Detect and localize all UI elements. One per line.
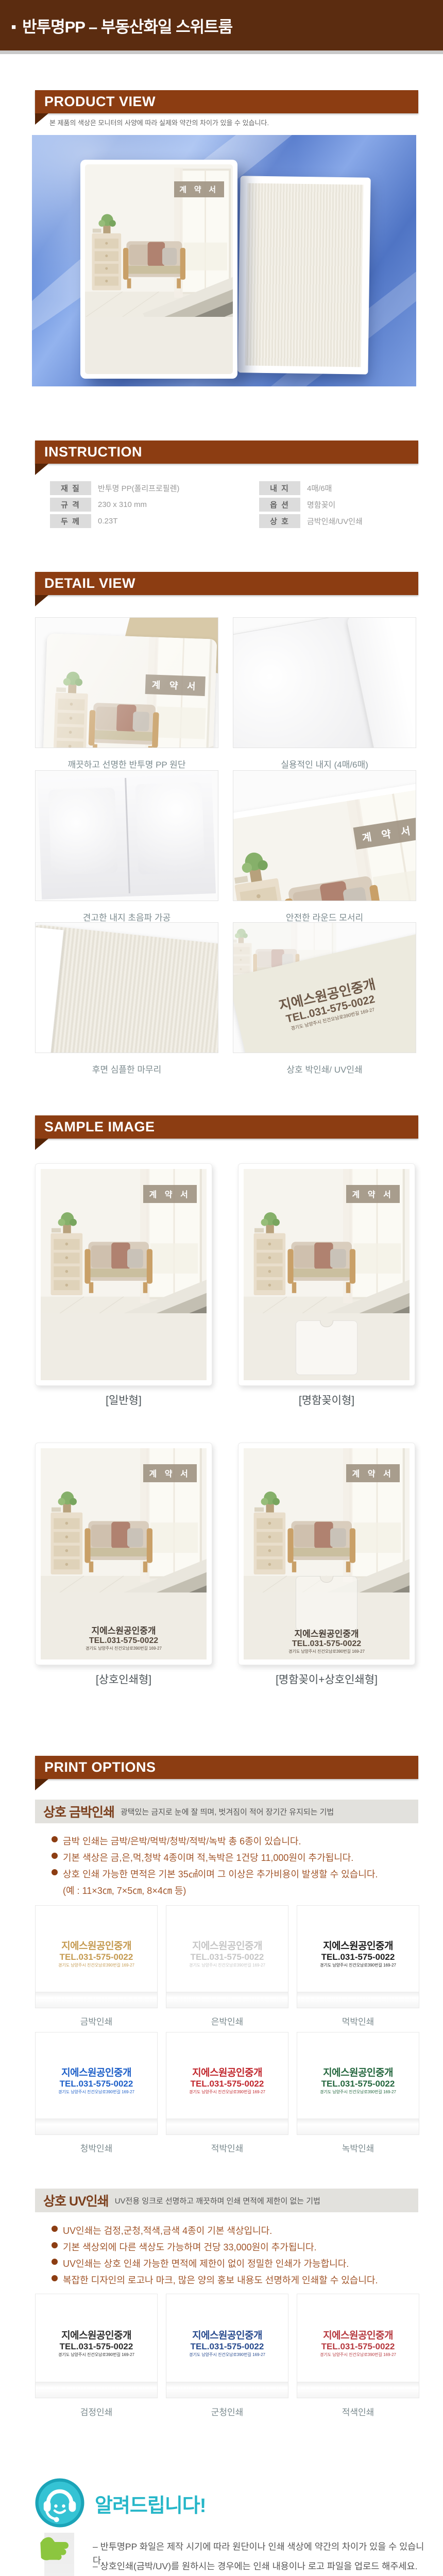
print-sample-text: 지에스원공인중개 TEL.031-575-0022 경기도 남양주시 진건오남로… [249, 968, 408, 1040]
headset-icon [34, 2477, 86, 2529]
pp-sheen [43, 633, 217, 748]
foil-bullet: 금박 인쇄는 금박/은박/먹박/청박/적박/녹박 총 6종이 있습니다. [52, 1834, 407, 1848]
uv-swatch-black: 지에스원공인중개 TEL.031-575-0022 경기도 남양주시 진건오남로… [35, 2294, 158, 2398]
foil-swatch-silver: 지에스원공인중개 TEL.031-575-0022 경기도 남양주시 진건오남로… [166, 1905, 288, 2008]
open-pockets [38, 772, 216, 900]
page-header: ■ 반투명PP – 부동산화일 스위트룸 [0, 0, 443, 50]
swatch-caption: 청박인쇄 [35, 2141, 158, 2154]
uv-print-title: 상호 UV인쇄 [43, 2191, 109, 2210]
folder-cover-bottom: 지에스원공인중개 TEL.031-575-0022 경기도 남양주시 진건오남로… [244, 1592, 410, 1659]
section-product-view: PRODUCT VIEW [35, 90, 418, 113]
spec-row-branding: 상 호 금박인쇄/UV인쇄 [259, 514, 363, 528]
bullet-text: 금박 인쇄는 금박/은박/먹박/청박/적박/녹박 총 6종이 있습니다. [63, 1834, 301, 1848]
company-tel: TEL.031-575-0022 [166, 1952, 288, 1962]
bullet-dot-icon [52, 1836, 58, 1842]
uv-print-desc: UV전용 잉크로 선명하고 깨끗하며 인쇄 면적에 제한이 없는 기법 [115, 2195, 320, 2206]
bullet-text: 기본 색상외에 다른 색상도 가능하며 건당 33,000원이 추가됩니다. [63, 2240, 317, 2253]
uv-swatch-red: 지에스원공인중개 TEL.031-575-0022 경기도 남양주시 진건오남로… [297, 2294, 419, 2398]
sample-folder-basic: 계 약 서 [35, 1163, 212, 1386]
contract-label: 계 약 서 [143, 1464, 196, 1482]
swatch-caption: 금박인쇄 [35, 2014, 158, 2027]
section-title: INSTRUCTION [44, 444, 142, 460]
pocket-notch [320, 1576, 333, 1583]
notice-line: – 상호인쇄(금박/UV)를 원하시는 경우에는 인쇄 내용이나 로고 파일을 … [93, 2560, 428, 2573]
contract-label: 계 약 서 [346, 1464, 399, 1482]
section-sample-image: SAMPLE IMAGE [35, 1115, 418, 1139]
print-sample-text: 지에스원공인중개 TEL.031-575-0022 경기도 남양주시 진건오남로… [41, 1623, 207, 1651]
foil-swatch-red: 지에스원공인중개 TEL.031-575-0022 경기도 남양주시 진건오남로… [166, 2032, 288, 2135]
section-print-options: PRINT OPTIONS [35, 1756, 418, 1779]
detail-caption: 실용적인 내지 (4매/6매) [233, 757, 416, 770]
swatch-caption: 녹박인쇄 [297, 2141, 419, 2154]
detail-caption: 깨끗하고 선명한 반투명 PP 원단 [35, 757, 218, 770]
folder-cover-photo: 계 약 서 [244, 1448, 410, 1592]
print-sample-text: 지에스원공인중개 TEL.031-575-0022 경기도 남양주시 진건오남로… [297, 2065, 419, 2095]
print-sample-text: 지에스원공인중개 TEL.031-575-0022 경기도 남양주시 진건오남로… [36, 2328, 157, 2358]
folder-back-cover [237, 176, 370, 374]
folder-cover-photo: 계 약 서 [233, 787, 416, 901]
sample-folder-brand-print: 계 약 서 지에스원공인중개 TEL.031-575-0022 경기도 남양주시… [35, 1443, 212, 1665]
contract-label: 계 약 서 [346, 1185, 399, 1203]
company-tel: TEL.031-575-0022 [36, 1952, 157, 1962]
company-name: 지에스원공인중개 [297, 2328, 419, 2342]
pp-cover-sheet: 계 약 서 [43, 633, 217, 748]
bullet-dot-icon [52, 2242, 58, 2248]
detail-caption: 후면 심플한 마무리 [35, 1062, 218, 1075]
header-divider [0, 50, 443, 54]
ultrasonic-seam [125, 778, 130, 893]
spec-label: 상 호 [259, 514, 300, 528]
bullet-text: UV인쇄는 검정,군청,적색,금색 4종이 기본 색상입니다. [63, 2224, 272, 2237]
foil-bullet: 상호 인쇄 가능한 면적은 기본 35㎠이며 그 이상은 추가비용이 발생할 수… [52, 1867, 407, 1880]
notice-title: 알려드립니다! [95, 2489, 206, 2518]
detail-photo-pp-cover: 계 약 서 [35, 617, 218, 748]
swatch-caption: 적박인쇄 [166, 2141, 288, 2154]
company-address: 경기도 남양주시 진건오남로390번길 169-27 [297, 2352, 419, 2358]
foil-print-desc: 광택있는 금지로 눈에 잘 띄며, 벗겨짐이 적어 장기간 유지되는 기법 [121, 1806, 334, 1817]
detail-photo-branding-print: 지에스원공인중개 TEL.031-575-0022 경기도 남양주시 진건오남로… [233, 922, 416, 1053]
spec-value: 4매/6매 [307, 483, 332, 494]
company-name: 지에스원공인중개 [36, 1938, 157, 1952]
folder-cover-bottom [244, 1313, 410, 1380]
company-name: 지에스원공인중개 [36, 2328, 157, 2342]
section-title: SAMPLE IMAGE [44, 1119, 155, 1135]
uv-bullet: UV인쇄는 상호 인쇄 가능한 면적에 제한이 없이 정밀한 인쇄가 가능합니다… [52, 2257, 407, 2270]
pocket-notch [320, 1320, 333, 1327]
product-detail-page: ■ 반투명PP – 부동산화일 스위트룸 PRODUCT VIEW 본 제품의 … [0, 0, 443, 2576]
company-name: 지에스원공인중개 [36, 2065, 157, 2079]
print-sample-text: 지에스원공인중개 TEL.031-575-0022 경기도 남양주시 진건오남로… [244, 1626, 410, 1654]
bullet-dot-icon [52, 2275, 58, 2281]
company-tel: TEL.031-575-0022 [244, 1639, 410, 1649]
product-main-image: 계 약 서 [32, 135, 416, 386]
swatch-caption: 검정인쇄 [35, 2405, 158, 2418]
page-title: 반투명PP – 부동산화일 스위트룸 [22, 14, 232, 37]
folder-cover-bottom [85, 317, 233, 374]
company-address: 경기도 남양주시 진건오남로390번길 169-27 [36, 2089, 157, 2095]
company-name: 지에스원공인중개 [297, 1938, 419, 1952]
company-address: 경기도 남양주시 진건오남로390번길 169-27 [166, 1962, 288, 1968]
company-address: 경기도 남양주시 진건오남로390번길 169-27 [297, 1962, 419, 1968]
company-name: 지에스원공인중개 [41, 1623, 207, 1636]
company-tel: TEL.031-575-0022 [36, 2079, 157, 2089]
spec-label: 재 질 [50, 481, 91, 495]
print-sample-text: 지에스원공인중개 TEL.031-575-0022 경기도 남양주시 진건오남로… [166, 2328, 288, 2358]
sample-folder-card-pocket: 계 약 서 [238, 1163, 415, 1386]
spec-value: 명함꽂이 [307, 499, 335, 510]
pocket-sheen [135, 782, 205, 874]
uv-swatch-navy: 지에스원공인중개 TEL.031-575-0022 경기도 남양주시 진건오남로… [166, 2294, 288, 2398]
company-name: 지에스원공인중개 [166, 1938, 288, 1952]
company-address: 경기도 남양주시 진건오남로390번길 169-27 [41, 1646, 207, 1651]
print-sample-text: 지에스원공인중개 TEL.031-575-0022 경기도 남양주시 진건오남로… [166, 1938, 288, 1968]
spec-value: 0.23T [98, 517, 117, 526]
foil-bullet-example: (예 : 11×3㎝, 7×5㎝, 8×4㎝ 등) [63, 1884, 186, 1897]
spec-row-option: 옵 션 명함꽂이 [259, 498, 335, 512]
spec-label: 두 께 [50, 514, 91, 528]
detail-caption: 견고한 내지 초음파 가공 [35, 910, 218, 923]
company-tel: TEL.031-575-0022 [41, 1636, 207, 1646]
company-name: 지에스원공인중개 [166, 2328, 288, 2342]
company-tel: TEL.031-575-0022 [36, 2342, 157, 2352]
uv-bullet: 복잡한 디자인의 로고나 마크, 많은 양의 홍보 내용도 선명하게 인쇄할 수… [52, 2273, 407, 2286]
company-address: 경기도 남양주시 진건오남로390번길 169-27 [166, 2089, 288, 2095]
detail-caption: 상호 박인쇄/ UV인쇄 [233, 1062, 416, 1075]
spec-row-size: 규 격 230 x 310 mm [50, 498, 147, 512]
company-address: 경기도 남양주시 진건오남로390번길 169-27 [36, 1962, 157, 1968]
swatch-caption: 군청인쇄 [166, 2405, 288, 2418]
swatch-caption: 은박인쇄 [166, 2014, 288, 2027]
bullet-text: 복잡한 디자인의 로고나 마크, 많은 양의 홍보 내용도 선명하게 인쇄할 수… [63, 2273, 378, 2286]
folder-cover-photo: 계 약 서 [41, 1169, 207, 1313]
company-name: 지에스원공인중개 [244, 1626, 410, 1639]
print-sample-text: 지에스원공인중개 TEL.031-575-0022 경기도 남양주시 진건오남로… [36, 2065, 157, 2095]
section-title: PRODUCT VIEW [44, 94, 156, 110]
bullet-dot-icon [52, 2226, 58, 2232]
folder-round-corner: 계 약 서 [233, 779, 416, 901]
foil-swatch-black: 지에스원공인중개 TEL.031-575-0022 경기도 남양주시 진건오남로… [297, 1905, 419, 2008]
uv-print-header: 상호 UV인쇄 UV전용 잉크로 선명하고 깨끗하며 인쇄 면적에 제한이 없는… [35, 2189, 418, 2212]
spec-label: 옵 션 [259, 498, 300, 512]
company-tel: TEL.031-575-0022 [166, 2079, 288, 2089]
back-cover-texture [35, 924, 218, 1053]
folder-cover-photo: 계 약 서 [244, 1169, 410, 1313]
contract-label: 계 약 서 [143, 1185, 196, 1203]
business-card-pocket [296, 1576, 357, 1631]
swatch-caption: 적색인쇄 [297, 2405, 419, 2418]
section-detail-view: DETAIL VIEW [35, 572, 418, 595]
spec-value: 반투명 PP(폴리프로필렌) [98, 483, 179, 494]
print-sample-text: 지에스원공인중개 TEL.031-575-0022 경기도 남양주시 진건오남로… [36, 1938, 157, 1968]
print-sample-text: 지에스원공인중개 TEL.031-575-0022 경기도 남양주시 진건오남로… [166, 2065, 288, 2095]
sample-label: [명함꽂이형] [238, 1392, 415, 1408]
spec-row-material: 재 질 반투명 PP(폴리프로필렌) [50, 481, 179, 495]
spec-label: 내 지 [259, 481, 300, 495]
spec-value: 230 x 310 mm [98, 500, 147, 509]
folder-cover-photo: 계 약 서 [85, 164, 233, 317]
company-tel: TEL.031-575-0022 [166, 2342, 288, 2352]
section-instruction: INSTRUCTION [35, 440, 418, 464]
company-address: 경기도 남양주시 진건오남로390번길 169-27 [244, 1649, 410, 1654]
sample-folder-pocket-and-print: 계 약 서 지에스원공인중개 TEL.031-575-0022 경기도 남양주시… [238, 1443, 415, 1665]
folder-back-texture [245, 183, 364, 367]
pocket-sheen [48, 787, 117, 875]
company-address: 경기도 남양주시 진건오남로390번길 169-27 [36, 2352, 157, 2358]
foil-swatch-blue: 지에스원공인중개 TEL.031-575-0022 경기도 남양주시 진건오남로… [35, 2032, 158, 2135]
bullet-dot-icon [52, 2259, 58, 2265]
foil-swatch-green: 지에스원공인중개 TEL.031-575-0022 경기도 남양주시 진건오남로… [297, 2032, 419, 2135]
detail-photo-round-corner: 계 약 서 [233, 770, 416, 901]
bullet-text: 기본 색상은 금,은,먹,청박 4종이며 적,녹박은 1건당 11,000원이 … [63, 1851, 353, 1864]
sample-label: [상호인쇄형] [35, 1671, 212, 1687]
contract-label: 계 약 서 [174, 181, 224, 198]
detail-photo-back-finish [35, 922, 218, 1053]
detail-photo-inner-sheets [233, 617, 416, 748]
title-bullet-icon: ■ [11, 23, 16, 31]
folder-front-cover: 계 약 서 [80, 160, 237, 379]
sample-label: [명함꽂이+상호인쇄형] [238, 1671, 415, 1687]
business-card-pocket [296, 1320, 357, 1375]
bullet-dot-icon [52, 1853, 58, 1859]
detail-photo-ultrasonic [35, 770, 218, 901]
bullet-text: UV인쇄는 상호 인쇄 가능한 면적에 제한이 없이 정밀한 인쇄가 가능합니다… [63, 2257, 349, 2270]
spec-label: 규 격 [50, 498, 91, 512]
spec-value: 금박인쇄/UV인쇄 [307, 516, 363, 527]
uv-bullet: 기본 색상외에 다른 색상도 가능하며 건당 33,000원이 추가됩니다. [52, 2240, 407, 2253]
foil-print-title: 상호 금박인쇄 [43, 1802, 114, 1821]
section-title: DETAIL VIEW [44, 575, 135, 591]
foil-bullet: 기본 색상은 금,은,먹,청박 4종이며 적,녹박은 1건당 11,000원이 … [52, 1851, 407, 1864]
foil-print-header: 상호 금박인쇄 광택있는 금지로 눈에 잘 띄며, 벗겨짐이 적어 장기간 유지… [35, 1800, 418, 1823]
section-title: PRINT OPTIONS [44, 1759, 156, 1775]
company-name: 지에스원공인중개 [297, 2065, 419, 2079]
thumb-green-icon [38, 2536, 70, 2561]
company-tel: TEL.031-575-0022 [297, 1952, 419, 1962]
folder-cover-photo: 계 약 서 [41, 1448, 207, 1592]
bullet-dot-icon [52, 1869, 58, 1875]
folder-cover-bottom: 지에스원공인중개 TEL.031-575-0022 경기도 남양주시 진건오남로… [41, 1592, 207, 1659]
company-tel: TEL.031-575-0022 [297, 2342, 419, 2352]
spec-row-thickness: 두 께 0.23T [50, 514, 117, 528]
bullet-text: 상호 인쇄 가능한 면적은 기본 35㎠이며 그 이상은 추가비용이 발생할 수… [63, 1867, 378, 1880]
print-sample-text: 지에스원공인중개 TEL.031-575-0022 경기도 남양주시 진건오남로… [297, 1938, 419, 1968]
print-sample-text: 지에스원공인중개 TEL.031-575-0022 경기도 남양주시 진건오남로… [297, 2328, 419, 2358]
product-view-note: 본 제품의 색상은 모니터의 사양에 따라 실제와 약간의 차이가 있을 수 있… [49, 117, 269, 127]
detail-caption: 안전한 라운드 모서리 [233, 910, 416, 923]
swatch-caption: 먹박인쇄 [297, 2014, 419, 2027]
company-address: 경기도 남양주시 진건오남로390번길 169-27 [166, 2352, 288, 2358]
company-tel: TEL.031-575-0022 [297, 2079, 419, 2089]
foil-swatch-gold: 지에스원공인중개 TEL.031-575-0022 경기도 남양주시 진건오남로… [35, 1905, 158, 2008]
folder-cover-bottom [41, 1313, 207, 1380]
company-name: 지에스원공인중개 [166, 2065, 288, 2079]
sample-label: [일반형] [35, 1392, 212, 1408]
spec-row-inner-sheets: 내 지 4매/6매 [259, 481, 332, 495]
company-address: 경기도 남양주시 진건오남로390번길 169-27 [297, 2089, 419, 2095]
uv-bullet: UV인쇄는 검정,군청,적색,금색 4종이 기본 색상입니다. [52, 2224, 407, 2237]
